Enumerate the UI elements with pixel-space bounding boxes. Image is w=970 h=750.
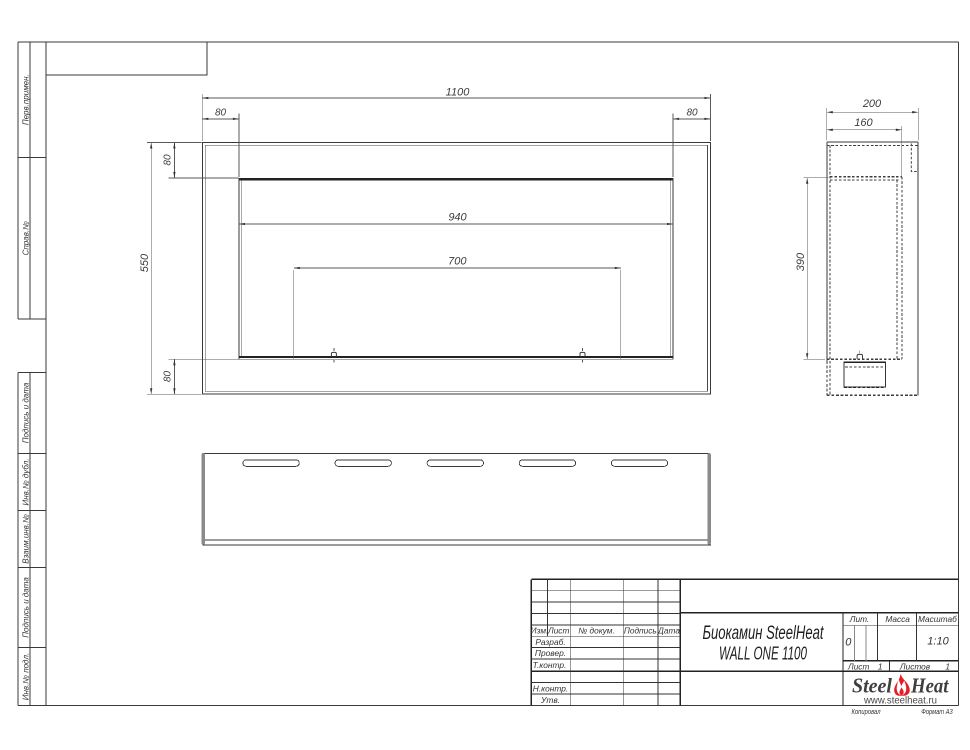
svg-text:700: 700 (448, 256, 467, 268)
svg-text:Т.контр.: Т.контр. (533, 660, 567, 670)
svg-text:80: 80 (215, 108, 227, 119)
svg-text:Разраб.: Разраб. (535, 637, 565, 647)
svg-text:80: 80 (162, 371, 173, 383)
svg-text:Дата: Дата (657, 625, 680, 635)
svg-text:Биокамин SteelHeat: Биокамин SteelHeat (703, 623, 824, 644)
svg-text:Инв.№ дубл.: Инв.№ дубл. (21, 459, 30, 506)
svg-text:1:10: 1:10 (927, 636, 949, 648)
svg-text:80: 80 (162, 154, 173, 166)
svg-text:Подпись и дата: Подпись и дата (21, 577, 30, 638)
svg-text:390: 390 (795, 252, 807, 271)
svg-text:Инв.№ подл.: Инв.№ подл. (21, 653, 30, 700)
svg-text:Подпись: Подпись (624, 625, 657, 635)
svg-text:0: 0 (845, 637, 852, 649)
svg-text:WALL ONE 1100: WALL ONE 1100 (719, 644, 807, 664)
svg-text:Лист: Лист (547, 625, 569, 635)
svg-text:Утв.: Утв. (540, 695, 560, 705)
svg-text:Масса: Масса (885, 614, 910, 624)
svg-text:www.steelheat.ru: www.steelheat.ru (863, 695, 937, 707)
svg-text:Листов: Листов (899, 661, 931, 671)
svg-text:1: 1 (878, 661, 883, 671)
svg-text:1100: 1100 (446, 86, 471, 98)
svg-text:160: 160 (854, 117, 873, 129)
svg-text:Подпись и дата: Подпись и дата (21, 382, 30, 443)
svg-text:Перв.примен.: Перв.примен. (21, 74, 30, 125)
svg-text:№ докум.: № докум. (578, 625, 615, 635)
svg-text:Изм.: Изм. (531, 625, 549, 635)
svg-text:Справ.№: Справ.№ (21, 221, 30, 255)
svg-text:Масштаб: Масштаб (918, 614, 957, 624)
svg-text:80: 80 (686, 108, 698, 119)
svg-text:Провер.: Провер. (535, 648, 566, 658)
svg-text:1: 1 (945, 661, 950, 671)
svg-text:200: 200 (862, 98, 882, 110)
svg-text:Взаим.инв.№: Взаим.инв.№ (21, 514, 30, 564)
svg-text:940: 940 (448, 212, 467, 224)
svg-text:Лит.: Лит. (849, 614, 869, 624)
svg-text:Формат А3: Формат А3 (921, 707, 953, 716)
svg-text:Лист: Лист (847, 661, 869, 671)
svg-text:Н.контр.: Н.контр. (533, 683, 568, 693)
svg-text:Копировал: Копировал (852, 707, 882, 716)
svg-text:550: 550 (139, 253, 151, 272)
